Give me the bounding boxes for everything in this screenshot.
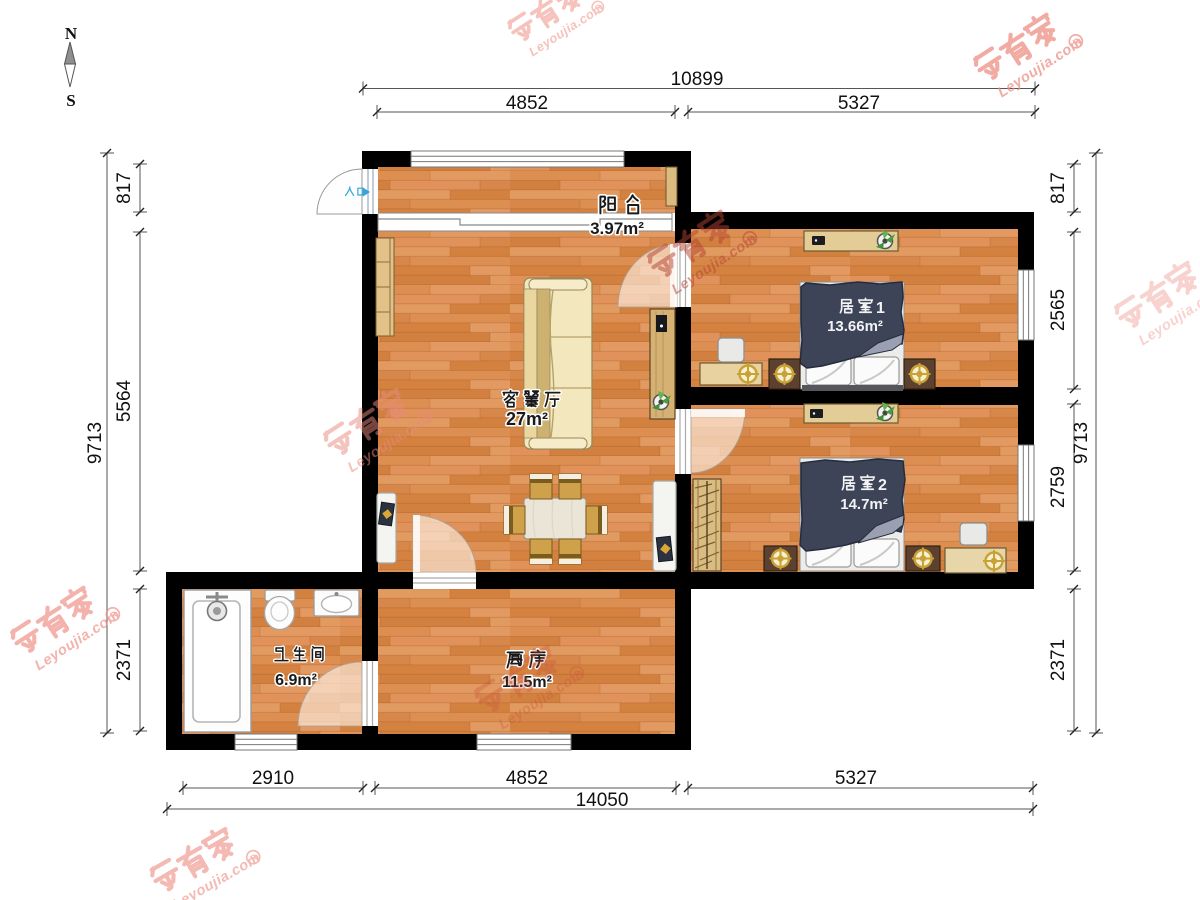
svg-text:N: N: [65, 24, 78, 43]
svg-text:14050: 14050: [576, 790, 629, 811]
svg-text:4852: 4852: [506, 93, 548, 114]
svg-text:27m²: 27m²: [506, 409, 548, 429]
svg-text:5327: 5327: [835, 768, 877, 789]
svg-text:3.97m²: 3.97m²: [590, 219, 644, 238]
svg-text:10899: 10899: [671, 69, 724, 90]
svg-text:5564: 5564: [114, 379, 135, 422]
svg-text:2: 2: [878, 477, 887, 494]
svg-text:2371: 2371: [114, 639, 135, 681]
svg-text:13.66m²: 13.66m²: [827, 318, 883, 335]
svg-text:4852: 4852: [506, 768, 548, 789]
svg-text:1: 1: [876, 300, 885, 317]
svg-text:2910: 2910: [252, 768, 294, 789]
svg-text:5327: 5327: [838, 93, 880, 114]
svg-text:817: 817: [1048, 172, 1069, 204]
svg-text:2759: 2759: [1048, 466, 1069, 508]
svg-text:6.9m²: 6.9m²: [275, 672, 317, 689]
svg-text:2371: 2371: [1048, 639, 1069, 681]
svg-text:817: 817: [114, 172, 135, 204]
svg-text:9713: 9713: [85, 422, 106, 464]
svg-text:14.7m²: 14.7m²: [840, 496, 888, 513]
svg-text:2565: 2565: [1048, 289, 1069, 331]
svg-text:9713: 9713: [1071, 422, 1092, 464]
svg-text:S: S: [66, 91, 75, 110]
